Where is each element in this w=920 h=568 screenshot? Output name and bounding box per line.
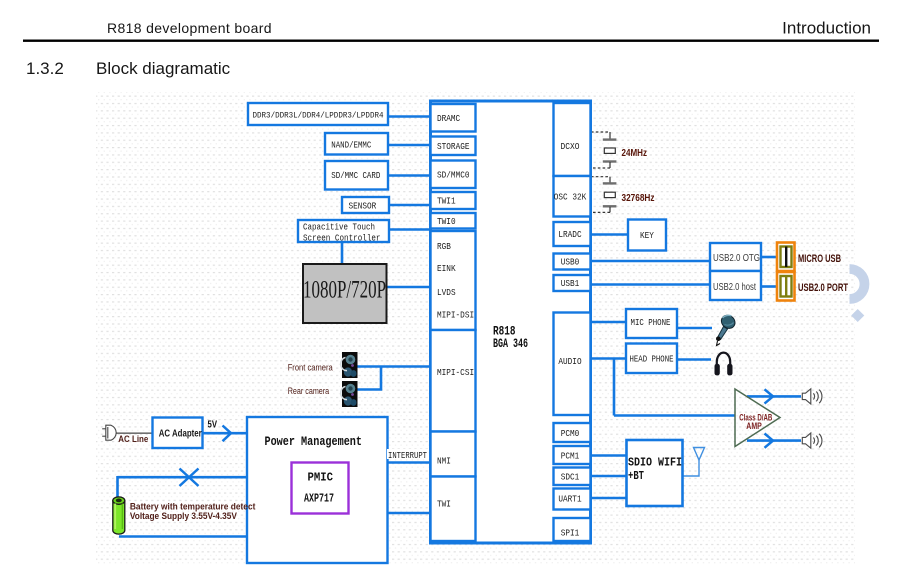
svg-text:DRAMC: DRAMC bbox=[437, 114, 461, 124]
svg-text:RGB: RGB bbox=[437, 242, 451, 252]
svg-text:UART1: UART1 bbox=[558, 495, 581, 505]
svg-text:Capacitive Touch: Capacitive Touch bbox=[303, 223, 375, 233]
svg-text:Front camera: Front camera bbox=[288, 363, 333, 373]
svg-text:+BT: +BT bbox=[628, 469, 644, 483]
svg-text:AMP: AMP bbox=[746, 421, 762, 431]
svg-text:DDR3/DDR3L/DDR4/LPDDR3/LPDDR4: DDR3/DDR3L/DDR4/LPDDR3/LPDDR4 bbox=[253, 111, 384, 121]
svg-text:MIPI-DSI: MIPI-DSI bbox=[437, 311, 474, 321]
svg-text:AXP717: AXP717 bbox=[304, 491, 334, 505]
svg-text:1.3.2: 1.3.2 bbox=[26, 59, 64, 78]
svg-text:SPI1: SPI1 bbox=[561, 529, 580, 539]
svg-text:STORAGE: STORAGE bbox=[437, 142, 470, 152]
svg-text:NMI: NMI bbox=[437, 457, 451, 467]
svg-text:OSC 32K: OSC 32K bbox=[554, 192, 587, 202]
svg-text:PCM1: PCM1 bbox=[561, 452, 580, 462]
svg-text:AC Adapter: AC Adapter bbox=[159, 428, 202, 440]
svg-text:INTERRUPT: INTERRUPT bbox=[388, 450, 427, 461]
svg-text:1080P/720P: 1080P/720P bbox=[303, 275, 386, 303]
svg-text:5V: 5V bbox=[208, 420, 218, 431]
svg-text:USB2.0 host: USB2.0 host bbox=[713, 281, 756, 293]
svg-text:USB1: USB1 bbox=[561, 279, 580, 289]
svg-text:MIC PHONE: MIC PHONE bbox=[631, 317, 671, 328]
svg-text:USB0: USB0 bbox=[561, 258, 580, 268]
svg-text:BGA 346: BGA 346 bbox=[493, 337, 528, 351]
svg-text:Block diagramatic: Block diagramatic bbox=[96, 59, 231, 78]
svg-text:Rear camera: Rear camera bbox=[288, 386, 330, 396]
svg-text:USB2.0 PORT: USB2.0 PORT bbox=[798, 282, 848, 294]
svg-text:24MHz: 24MHz bbox=[622, 148, 648, 159]
svg-text:TWI1: TWI1 bbox=[437, 197, 456, 207]
svg-text:32768Hz: 32768Hz bbox=[622, 193, 655, 204]
svg-text:SDC1: SDC1 bbox=[561, 473, 580, 483]
svg-text:SD/MMC CARD: SD/MMC CARD bbox=[331, 171, 380, 181]
svg-text:Voltage Supply 3.55V-4.35V: Voltage Supply 3.55V-4.35V bbox=[130, 511, 238, 522]
svg-text:SD/MMC0: SD/MMC0 bbox=[437, 170, 470, 180]
svg-text:R818 development board: R818 development board bbox=[107, 20, 272, 36]
svg-text:MICRO USB: MICRO USB bbox=[798, 253, 841, 265]
svg-text:USB2.0 OTG: USB2.0 OTG bbox=[713, 252, 760, 264]
svg-text:LVDS: LVDS bbox=[437, 288, 456, 298]
svg-text:Screen Controller: Screen Controller bbox=[303, 233, 381, 243]
svg-text:HEAD PHONE: HEAD PHONE bbox=[630, 354, 674, 365]
svg-text:NAND/EMMC: NAND/EMMC bbox=[331, 141, 371, 151]
svg-text:SENSOR: SENSOR bbox=[349, 202, 377, 212]
svg-text:AC Line: AC Line bbox=[118, 434, 148, 445]
svg-text:DCXO: DCXO bbox=[561, 142, 580, 152]
svg-text:PMIC: PMIC bbox=[308, 470, 334, 484]
svg-text:Power Management: Power Management bbox=[265, 434, 363, 449]
svg-text:TWI: TWI bbox=[437, 499, 451, 509]
svg-text:LRADC: LRADC bbox=[558, 230, 582, 240]
svg-text:KEY: KEY bbox=[640, 231, 654, 241]
svg-text:AUDIO: AUDIO bbox=[558, 357, 581, 367]
svg-text:MIPI-CSI: MIPI-CSI bbox=[437, 368, 474, 378]
svg-text:TWI0: TWI0 bbox=[437, 217, 456, 227]
svg-text:Introduction: Introduction bbox=[782, 19, 871, 38]
svg-text:SDIO WIFI: SDIO WIFI bbox=[628, 456, 682, 470]
svg-text:EINK: EINK bbox=[437, 264, 456, 274]
svg-text:PCM0: PCM0 bbox=[561, 429, 580, 439]
